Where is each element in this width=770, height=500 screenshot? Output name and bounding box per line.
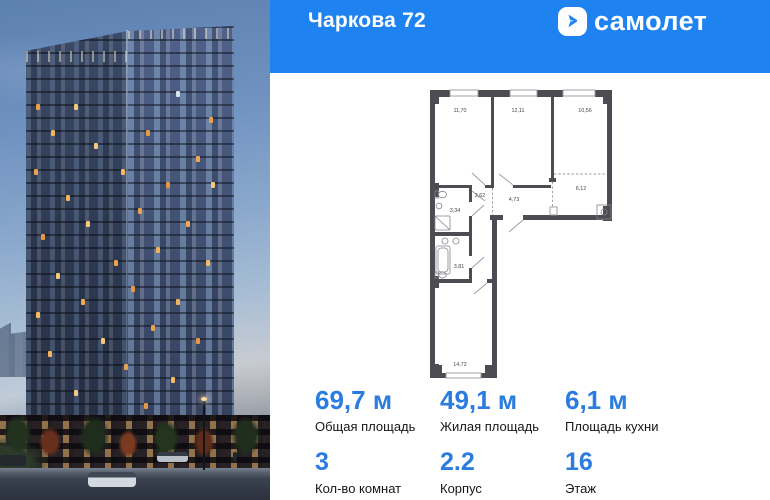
stat-total-area: 69,7 м Общая площадь [315, 386, 440, 434]
stat-value: 3 [315, 448, 440, 477]
stat-label: Кол-во комнат [315, 481, 440, 496]
trees [0, 392, 270, 470]
stat-building-number: 2.2 Корпус [440, 448, 565, 496]
tower-corner-edge [126, 30, 128, 440]
car [88, 472, 136, 487]
header-bar: Чаркова 72 самолет [270, 0, 770, 73]
room-area-label: 14,72 [453, 362, 467, 368]
stat-value: 16 [565, 448, 690, 477]
floor-plan: 11,70 12,11 10,56 6,12 2,62 4,73 3,34 3,… [425, 88, 615, 380]
street-lamp [203, 400, 205, 470]
tower-right-face [128, 26, 234, 440]
lit-windows [36, 104, 40, 110]
stat-value: 69,7 м [315, 386, 440, 415]
stats-grid: 69,7 м Общая площадь 49,1 м Жилая площад… [315, 386, 745, 496]
stat-living-area: 49,1 м Жилая площадь [440, 386, 565, 434]
room-area-label: 4,73 [509, 197, 520, 203]
stat-label: Жилая площадь [440, 419, 565, 434]
room-area-label: 3,34 [450, 208, 461, 214]
room-area-label: 2,62 [475, 193, 486, 199]
samolet-logo-icon [558, 7, 587, 36]
car [157, 452, 188, 462]
stat-value: 2.2 [440, 448, 565, 477]
stat-value: 49,1 м [440, 386, 565, 415]
stat-rooms-count: 3 Кол-во комнат [315, 448, 440, 496]
stat-label: Общая площадь [315, 419, 440, 434]
stat-label: Этаж [565, 481, 690, 496]
listing-card: Чаркова 72 самолет [0, 0, 770, 500]
room-area-label: 6,12 [576, 186, 587, 192]
plan-walls [430, 90, 612, 378]
car [0, 455, 26, 466]
building-photo [0, 0, 270, 500]
stat-value: 6,1 м [565, 386, 690, 415]
plan-doors [472, 173, 557, 294]
room-area-label: 11,70 [453, 108, 466, 114]
stat-label: Площадь кухни [565, 419, 690, 434]
stat-kitchen-area: 6,1 м Площадь кухни [565, 386, 690, 434]
room-area-label: 3,81 [454, 264, 465, 270]
project-title: Чаркова 72 [308, 9, 426, 33]
stat-floor-number: 16 Этаж [565, 448, 690, 496]
pedestrian [233, 452, 237, 461]
room-area-label: 12,11 [511, 108, 524, 114]
samolet-logo-text: самолет [594, 7, 707, 36]
tower-left-face [26, 26, 128, 440]
stat-label: Корпус [440, 481, 565, 496]
residential-tower [26, 26, 234, 440]
samolet-logo[interactable]: самолет [558, 7, 707, 36]
room-area-label: 10,56 [578, 108, 592, 114]
